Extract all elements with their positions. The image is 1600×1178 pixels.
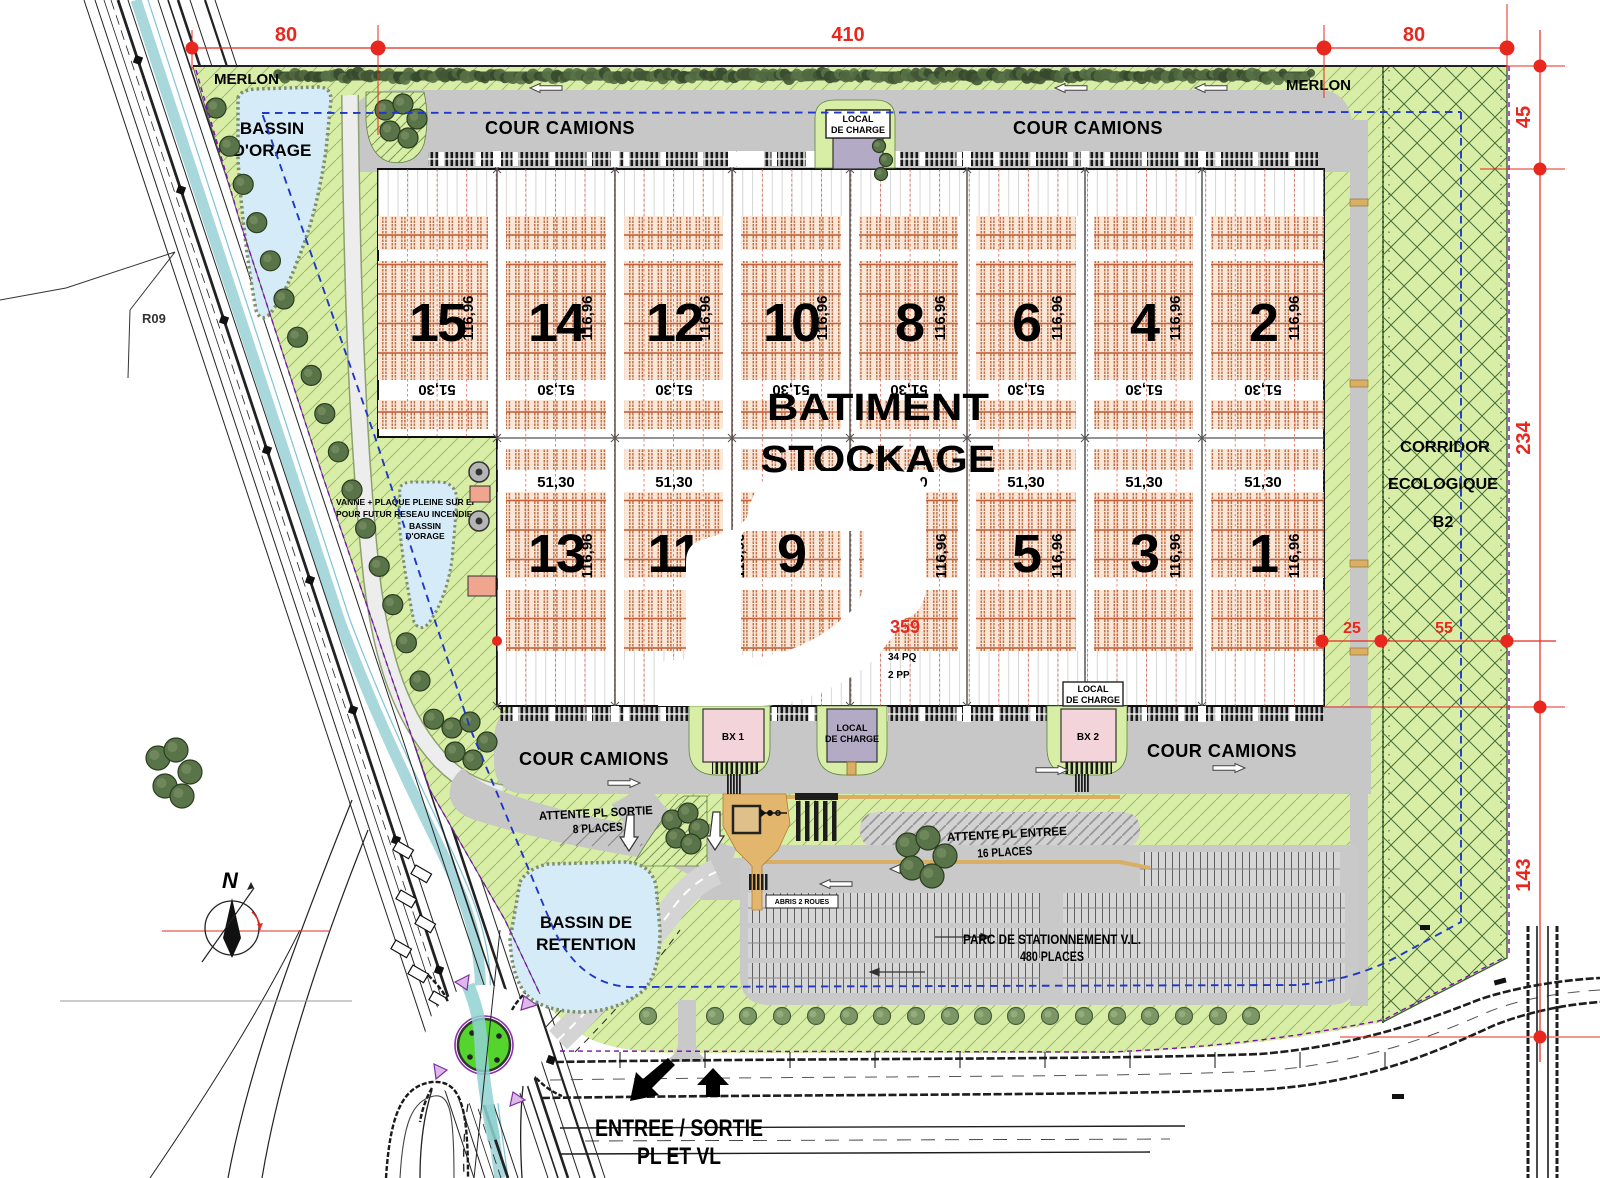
svg-text:116,96: 116,96 [1049,533,1066,578]
svg-text:116,96: 116,96 [697,295,714,340]
svg-text:15: 15 [409,293,466,353]
svg-text:4: 4 [1130,293,1160,353]
svg-text:2 PP: 2 PP [888,670,910,681]
svg-text:45: 45 [1513,106,1535,128]
svg-text:MERLON: MERLON [1286,77,1351,94]
svg-text:51,30: 51,30 [1125,474,1163,491]
svg-text:80: 80 [275,24,297,46]
svg-text:51,30: 51,30 [418,381,456,398]
svg-text:51,30: 51,30 [1244,381,1282,398]
svg-text:13: 13 [528,524,585,584]
svg-text:PARC DE STATIONNEMENT V.L.: PARC DE STATIONNEMENT V.L. [963,931,1141,947]
svg-text:RETENTION: RETENTION [536,935,636,954]
svg-text:51,30: 51,30 [1007,474,1045,491]
svg-text:PL ET VL: PL ET VL [637,1143,721,1170]
svg-text:POUR FUTUR RESEAU INCENDIE 12: POUR FUTUR RESEAU INCENDIE 12 [336,509,485,519]
svg-text:12: 12 [646,293,702,353]
svg-text:BATIMENT: BATIMENT [767,387,989,429]
svg-text:80: 80 [1403,24,1425,46]
svg-text:116,96: 116,96 [460,295,477,340]
svg-text:25: 25 [1343,620,1361,637]
svg-text:116,96: 116,96 [1167,533,1184,578]
svg-text:10: 10 [763,293,819,353]
svg-text:8: 8 [895,293,924,353]
svg-text:B2: B2 [1433,514,1454,531]
svg-text:116,96: 116,96 [1286,533,1303,578]
svg-text:51,30: 51,30 [655,474,693,491]
svg-text:DE CHARGE: DE CHARGE [825,734,879,744]
svg-text:480 PLACES: 480 PLACES [1020,948,1084,964]
svg-text:6: 6 [1012,293,1041,353]
svg-text:BASSIN: BASSIN [409,521,441,531]
svg-text:BX 2: BX 2 [1077,732,1100,743]
svg-text:COUR CAMIONS: COUR CAMIONS [1147,741,1297,761]
svg-text:51,30: 51,30 [1007,381,1045,398]
svg-text:34 PQ: 34 PQ [888,652,917,663]
svg-text:1: 1 [1249,524,1278,584]
svg-text:R09: R09 [142,311,166,326]
svg-text:116,96: 116,96 [1049,295,1066,340]
svg-text:234: 234 [1513,420,1535,454]
svg-text:BASSIN: BASSIN [240,119,304,138]
svg-text:51,30: 51,30 [1125,381,1163,398]
svg-text:51,30: 51,30 [537,474,575,491]
svg-text:116,96: 116,96 [814,295,831,340]
svg-text:14: 14 [528,293,586,353]
svg-text:CORRIDOR: CORRIDOR [1400,439,1490,456]
svg-text:LOCAL: LOCAL [837,723,868,733]
svg-text:3: 3 [1130,524,1159,584]
svg-text:9: 9 [777,524,806,584]
svg-text:55: 55 [1435,620,1453,637]
svg-text:410: 410 [831,24,864,46]
svg-text:51,30: 51,30 [1244,474,1282,491]
svg-text:116,96: 116,96 [932,295,949,340]
svg-text:ENTREE / SORTIE: ENTREE / SORTIE [595,1115,763,1142]
svg-text:116,96: 116,96 [1286,295,1303,340]
svg-text:ABRIS 2 ROUES: ABRIS 2 ROUES [775,899,830,906]
svg-text:MERLON: MERLON [214,71,279,88]
svg-text:116,96: 116,96 [1167,295,1184,340]
svg-text:COUR CAMIONS: COUR CAMIONS [519,749,669,769]
svg-text:8 PLACES: 8 PLACES [572,820,623,837]
svg-text:BX 1: BX 1 [722,732,745,743]
svg-text:N: N [222,868,239,893]
svg-text:COUR CAMIONS: COUR CAMIONS [1013,118,1163,138]
svg-text:LOCAL: LOCAL [843,114,874,124]
svg-text:51,30: 51,30 [655,381,693,398]
svg-text:5: 5 [1012,524,1041,584]
svg-text:D'ORAGE: D'ORAGE [405,531,445,541]
svg-text:116,96: 116,96 [579,533,596,578]
svg-text:2: 2 [1249,293,1277,353]
svg-text:LOCAL: LOCAL [1078,684,1109,694]
svg-text:116,96: 116,96 [579,295,596,340]
svg-text:ECOLOGIQUE: ECOLOGIQUE [1388,476,1498,493]
svg-text:16 PLACES: 16 PLACES [977,844,1033,861]
svg-text:DE CHARGE: DE CHARGE [831,125,885,135]
svg-text:359: 359 [890,617,920,637]
svg-text:DE CHARGE: DE CHARGE [1066,695,1120,705]
svg-text:116,96: 116,96 [933,533,950,578]
svg-text:143: 143 [1513,858,1535,891]
svg-text:COUR CAMIONS: COUR CAMIONS [485,118,635,138]
svg-text:51,30: 51,30 [537,381,575,398]
